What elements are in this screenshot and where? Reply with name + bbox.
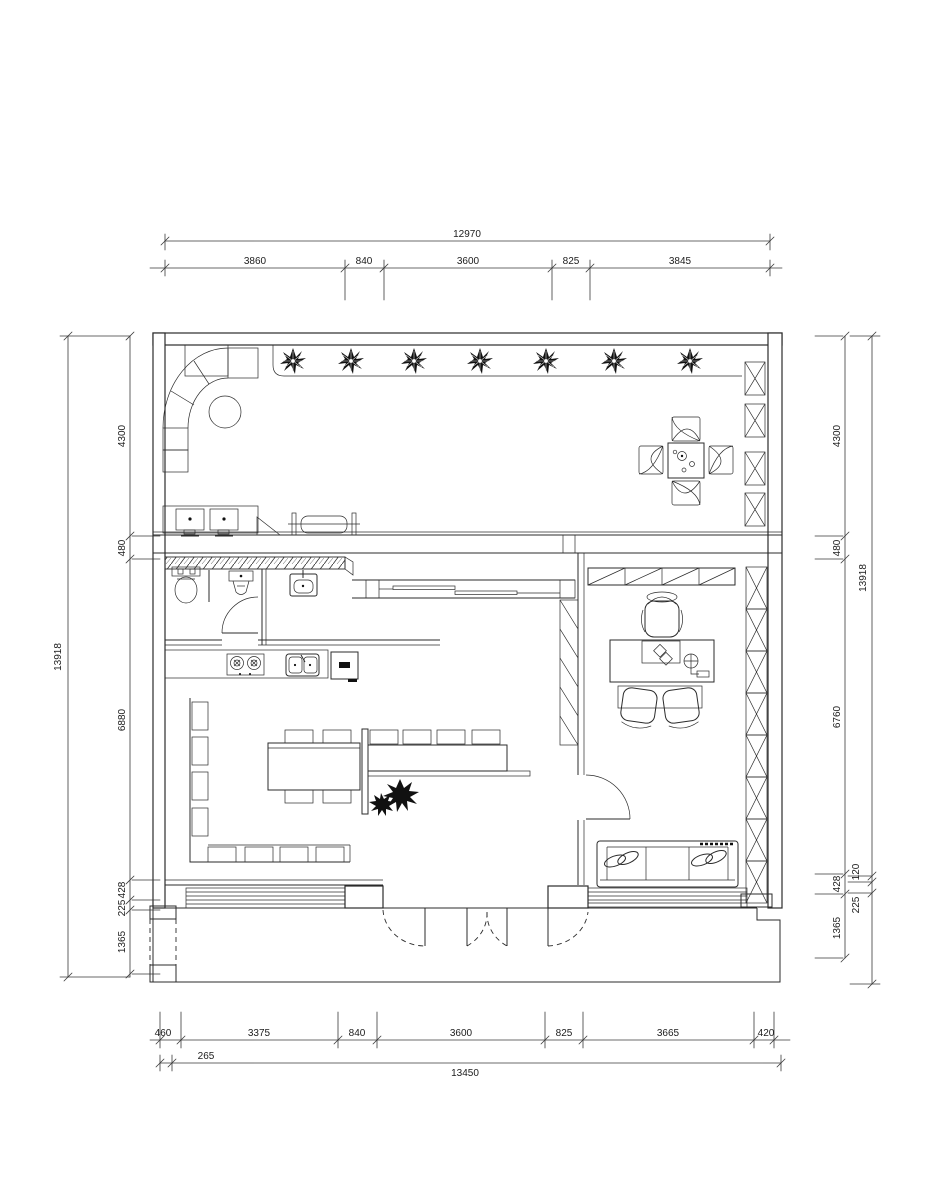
upper-room [163, 345, 765, 536]
divider-screen [362, 729, 368, 814]
dim-bottom-seg: 460 [155, 1028, 172, 1039]
wardrobe-north [588, 568, 735, 585]
wc-door [222, 597, 258, 633]
kitchen [165, 650, 358, 682]
sliding-window [352, 580, 575, 598]
office-door [586, 775, 630, 819]
dining-set [639, 417, 733, 505]
dim-bottom-seg: 3375 [248, 1028, 271, 1039]
dim-bottom-seg: 3600 [450, 1028, 473, 1039]
wardrobe-west [560, 600, 578, 745]
dim-bottom-seg: 3665 [657, 1028, 680, 1039]
dim-top-seg: 3845 [669, 256, 692, 267]
dim-bottom-seg: 420 [758, 1028, 775, 1039]
office [560, 553, 772, 907]
dim-left-seg: 1365 [117, 930, 128, 953]
dim-bottom-overall: 13450 [451, 1068, 479, 1079]
dim-top-seg: 3860 [244, 256, 267, 267]
floor-plant [369, 779, 419, 816]
dim-right-overall: 13918 [858, 564, 869, 592]
lattice-screen-lower [741, 567, 772, 907]
dim-bottom-offset: 265 [198, 1051, 215, 1062]
corner-sofa [163, 345, 258, 472]
double-sink [286, 654, 319, 676]
entry-door [383, 908, 588, 946]
urinal [229, 571, 253, 595]
dim-right-outer-seg: 225 [851, 896, 862, 913]
bench-seating [190, 698, 350, 862]
desk [610, 640, 714, 682]
floor-plan-page: 12970 3860 840 3600 825 3845 [0, 0, 939, 1177]
executive-chair [641, 592, 682, 637]
long-table-east [368, 730, 530, 776]
dim-right-seg: 428 [832, 875, 843, 892]
dim-bottom-seg: 825 [556, 1028, 573, 1039]
lattice-screen-upper [745, 362, 765, 526]
dim-top-seg: 3600 [457, 256, 480, 267]
toilet [172, 567, 200, 603]
north-wall [153, 333, 782, 345]
floor-plan-canvas: 12970 3860 840 3600 825 3845 [0, 0, 939, 1177]
dim-right-seg: 480 [832, 539, 843, 556]
porch [150, 886, 780, 982]
dim-left-seg: 4300 [117, 424, 128, 447]
dim-left-overall: 13918 [53, 643, 64, 671]
dim-left-seg: 6880 [117, 708, 128, 731]
dim-right-seg: 6760 [832, 705, 843, 728]
wet-area [165, 557, 440, 645]
dimensions: 12970 3860 840 3600 825 3845 [53, 229, 880, 1079]
dining-table [668, 443, 704, 478]
dim-right-outer-seg: 120 [851, 863, 862, 880]
round-table [209, 396, 241, 428]
dim-left: 13918 4300 480 6880 428 225 1365 [53, 332, 160, 981]
entry-steps-right [588, 888, 747, 907]
wash-basin [290, 570, 317, 596]
east-wall [768, 333, 782, 908]
dim-bottom-seg: 840 [349, 1028, 366, 1039]
fridge [331, 652, 358, 682]
dashed-column [150, 906, 176, 982]
dim-bottom: 460 3375 840 3600 825 3665 420 265 13450 [150, 1012, 790, 1079]
side-chairs [163, 506, 258, 536]
dim-top-overall: 12970 [453, 229, 481, 240]
dim-top-seg: 825 [563, 256, 580, 267]
meeting-area [165, 580, 575, 908]
dim-left-seg: 428 [117, 881, 128, 898]
dim-left-seg: 225 [117, 899, 128, 916]
dim-top-seg: 840 [356, 256, 373, 267]
long-table-west [268, 730, 360, 803]
planter-plants [280, 348, 703, 374]
dim-right-seg: 4300 [832, 424, 843, 447]
guest-chairs [618, 686, 702, 730]
dim-top: 12970 3860 840 3600 825 3845 [150, 229, 782, 300]
entry-steps-left [186, 888, 345, 908]
stove [227, 654, 264, 675]
office-sofa [597, 841, 738, 887]
dim-left-seg: 480 [117, 539, 128, 556]
dim-right: 4300 480 6760 428 1365 13918 120 225 [815, 332, 880, 988]
walls [153, 333, 782, 908]
dim-right-seg: 1365 [832, 916, 843, 939]
